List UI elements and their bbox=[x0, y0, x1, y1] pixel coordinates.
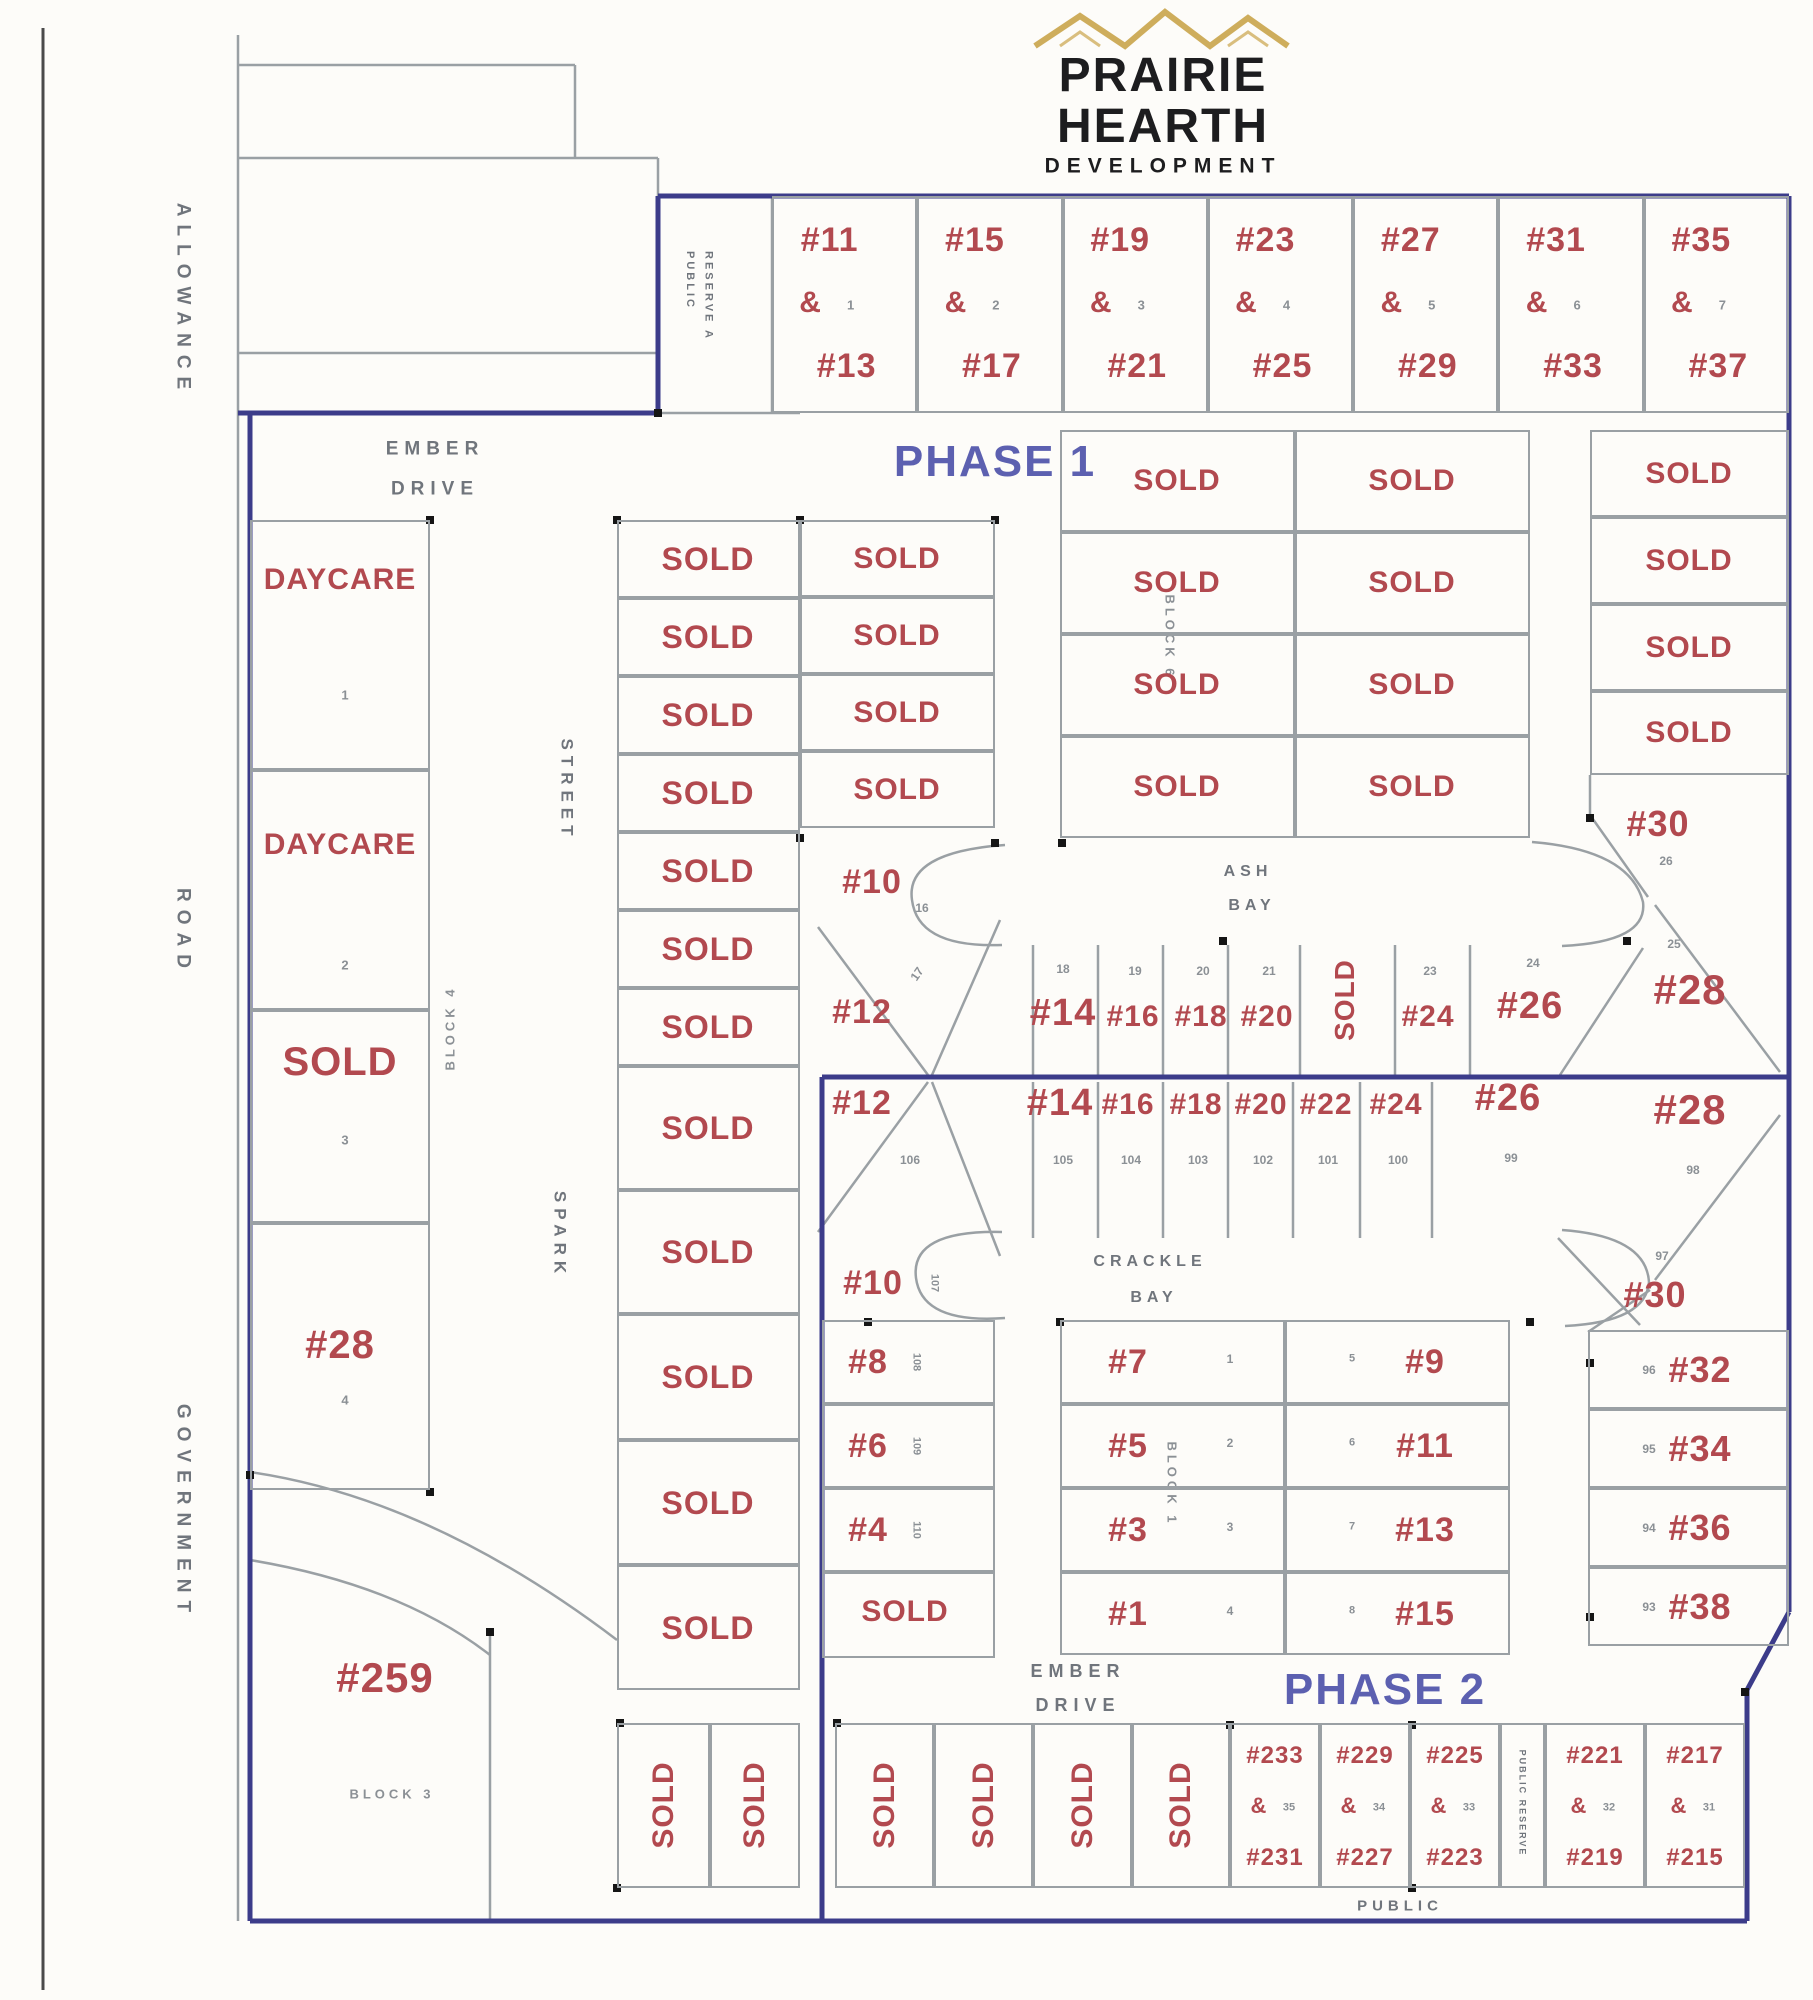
lot-label: #11 bbox=[1396, 1429, 1454, 1463]
lot-label: #17 bbox=[962, 349, 1022, 383]
lot-number: 96 bbox=[1642, 1364, 1655, 1376]
block4-label: BLOCK 4 bbox=[444, 985, 457, 1070]
lot-number: 26 bbox=[1659, 855, 1672, 867]
lot-label: DAYCARE bbox=[264, 565, 417, 595]
logo-line2: HEARTH bbox=[1057, 103, 1269, 151]
ash-bay-label: BAY bbox=[1228, 898, 1275, 914]
lot-label: #8 bbox=[848, 1345, 888, 1379]
rooflines-icon bbox=[1030, 6, 1300, 50]
lot-label: #15 bbox=[1395, 1597, 1455, 1631]
lot-number: 101 bbox=[1318, 1154, 1338, 1166]
lot-label: SOLD bbox=[662, 1361, 755, 1393]
lot-label: #25 bbox=[1253, 349, 1313, 383]
lot-label: #16 bbox=[1101, 1090, 1154, 1120]
public-reserve-a-label: PUBLIC RESERVE A bbox=[680, 251, 717, 341]
lot-cell bbox=[1060, 1488, 1285, 1572]
lot-label: #11 bbox=[801, 223, 859, 257]
lot-number: 108 bbox=[911, 1353, 922, 1371]
lot-label: & bbox=[1526, 288, 1549, 318]
lot-number: 31 bbox=[1703, 1803, 1715, 1814]
lot-number: 8 bbox=[1349, 1605, 1355, 1616]
lot-number: 6 bbox=[1573, 299, 1580, 312]
ember-drive-bottom-label: DRIVE bbox=[1035, 1696, 1120, 1714]
lot-number: 21 bbox=[1262, 965, 1275, 977]
lot-label: #36 bbox=[1668, 1510, 1731, 1546]
lot-label: & bbox=[1235, 288, 1258, 318]
lot-label: #5 bbox=[1108, 1429, 1148, 1463]
lot-label: #227 bbox=[1336, 1846, 1393, 1870]
lot-label: #23 bbox=[1236, 223, 1296, 257]
crackle-bay-label: BAY bbox=[1130, 1290, 1177, 1306]
lot-label: #21 bbox=[1107, 349, 1167, 383]
lot-label: SOLD bbox=[1368, 568, 1455, 598]
lot-label: #26 bbox=[1497, 987, 1563, 1025]
lot-number: 94 bbox=[1642, 1522, 1655, 1534]
lot-cell bbox=[250, 770, 430, 1010]
lot-label: #225 bbox=[1426, 1744, 1483, 1768]
lot-label: SOLD bbox=[853, 775, 940, 805]
lot-cell bbox=[1285, 1320, 1510, 1404]
lot-label: #34 bbox=[1668, 1431, 1731, 1467]
lot-label: #18 bbox=[1169, 1090, 1222, 1120]
lot-label: #38 bbox=[1668, 1589, 1731, 1625]
lot-label: SOLD bbox=[1166, 1761, 1196, 1848]
lot-label: #3 bbox=[1108, 1513, 1148, 1547]
lot-number: 25 bbox=[1667, 938, 1680, 950]
government-label: GOVERNMENT bbox=[174, 1404, 193, 1620]
lot-label: SOLD bbox=[1645, 633, 1732, 663]
lot-number: 2 bbox=[1227, 1437, 1234, 1449]
lot-number: 93 bbox=[1642, 1601, 1655, 1613]
lot-label: #10 bbox=[842, 865, 902, 899]
lot-number: 97 bbox=[1655, 1250, 1668, 1262]
lot-number: 109 bbox=[911, 1437, 922, 1455]
lot-label: SOLD bbox=[662, 1112, 755, 1144]
lot-label: #28 bbox=[1653, 1089, 1726, 1131]
lot-label: #12 bbox=[832, 1086, 892, 1120]
lot-label: #13 bbox=[1395, 1513, 1455, 1547]
lot-number: 4 bbox=[341, 1394, 348, 1407]
lot-label: #221 bbox=[1566, 1744, 1623, 1768]
lot-label: SOLD bbox=[969, 1761, 999, 1848]
lot-label: #22 bbox=[1299, 1090, 1352, 1120]
lot-number: 100 bbox=[1388, 1154, 1408, 1166]
lot-label: SOLD bbox=[662, 621, 755, 653]
lot-cell bbox=[1060, 1404, 1285, 1488]
lot-label: #12 bbox=[832, 995, 892, 1029]
lot-label: SOLD bbox=[1133, 568, 1220, 598]
lot-label: #37 bbox=[1688, 349, 1748, 383]
lot-number: 99 bbox=[1504, 1152, 1517, 1164]
lot-label: #31 bbox=[1526, 223, 1586, 257]
lot-label: #27 bbox=[1381, 223, 1441, 257]
lot-label: #1 bbox=[1108, 1597, 1148, 1631]
lot-number: 1 bbox=[341, 689, 348, 702]
lot-number: 2 bbox=[992, 299, 999, 312]
lot-number: 19 bbox=[1128, 965, 1141, 977]
lot-number: 107 bbox=[929, 1274, 940, 1292]
ash-bay-label: ASH bbox=[1224, 864, 1273, 880]
lot-label: #215 bbox=[1666, 1846, 1723, 1870]
lot-number: 106 bbox=[900, 1154, 920, 1166]
lot-label: SOLD bbox=[1368, 466, 1455, 496]
lot-label: SOLD bbox=[649, 1761, 679, 1848]
lot-label: #4 bbox=[848, 1513, 888, 1547]
lot-number: 4 bbox=[1283, 299, 1290, 312]
lot-number: 103 bbox=[1188, 1154, 1208, 1166]
lot-number: 16 bbox=[915, 902, 928, 914]
lot-number: 110 bbox=[911, 1521, 922, 1539]
lot-label: SOLD bbox=[662, 699, 755, 731]
lot-label: #15 bbox=[945, 223, 1005, 257]
lot-label: SOLD bbox=[1645, 546, 1732, 576]
spark-street-label: STREET bbox=[559, 738, 576, 841]
lot-label: #33 bbox=[1543, 349, 1603, 383]
lot-label: SOLD bbox=[853, 544, 940, 574]
ember-drive-top-label: EMBER bbox=[386, 440, 485, 459]
lot-label: #217 bbox=[1666, 1744, 1723, 1768]
lot-label: #20 bbox=[1240, 1002, 1293, 1032]
lot-number: 32 bbox=[1603, 1803, 1615, 1814]
lot-259-label: #259 bbox=[336, 1657, 433, 1699]
lot-cell bbox=[1060, 1572, 1285, 1655]
lot-label: SOLD bbox=[1133, 670, 1220, 700]
lot-label: #219 bbox=[1566, 1846, 1623, 1870]
lot-label: SOLD bbox=[662, 1612, 755, 1644]
lot-label: SOLD bbox=[1645, 459, 1732, 489]
lot-label: & bbox=[1431, 1795, 1448, 1817]
lot-label: & bbox=[1671, 288, 1694, 318]
lot-number: 7 bbox=[1719, 299, 1726, 312]
lot-number: 24 bbox=[1526, 957, 1539, 969]
lot-label: #30 bbox=[1623, 1277, 1686, 1313]
lot-cell bbox=[250, 520, 430, 770]
lot-number: 2 bbox=[341, 959, 348, 972]
lot-label: #231 bbox=[1246, 1846, 1303, 1870]
lot-label: #223 bbox=[1426, 1846, 1483, 1870]
lot-number: 3 bbox=[341, 1134, 348, 1147]
lot-label: #26 bbox=[1475, 1079, 1541, 1117]
lot-number: 7 bbox=[1349, 1522, 1355, 1533]
lot-label: #233 bbox=[1246, 1744, 1303, 1768]
public-label: PUBLIC bbox=[1357, 1899, 1443, 1914]
ember-drive-top-label: DRIVE bbox=[391, 480, 479, 499]
lot-label: #14 bbox=[1027, 1084, 1093, 1122]
lot-label: #10 bbox=[843, 1266, 903, 1300]
lot-number: 5 bbox=[1428, 299, 1435, 312]
lot-label: #9 bbox=[1405, 1345, 1445, 1379]
lot-label: SOLD bbox=[662, 777, 755, 809]
ember-drive-bottom-label: EMBER bbox=[1030, 1662, 1125, 1680]
lot-number: 23 bbox=[1423, 965, 1436, 977]
lot-label: & bbox=[1341, 1795, 1358, 1817]
lot-label: SOLD bbox=[1068, 1761, 1098, 1848]
lot-label: SOLD bbox=[1368, 670, 1455, 700]
lot-label: SOLD bbox=[662, 933, 755, 965]
lot-label: & bbox=[1571, 1795, 1588, 1817]
lot-number: 34 bbox=[1373, 1803, 1385, 1814]
lot-label: #29 bbox=[1398, 349, 1458, 383]
lot-label: SOLD bbox=[662, 855, 755, 887]
lot-label: #18 bbox=[1174, 1002, 1227, 1032]
lot-label: SOLD bbox=[662, 543, 755, 575]
spark-street-label: SPARK bbox=[552, 1191, 569, 1279]
lot-number: 1 bbox=[1227, 1353, 1234, 1365]
lot-number: 98 bbox=[1686, 1164, 1699, 1176]
lot-cell bbox=[1060, 1320, 1285, 1404]
lot-number: 33 bbox=[1463, 1803, 1475, 1814]
lot-label: #20 bbox=[1234, 1090, 1287, 1120]
lot-label: #28 bbox=[305, 1325, 375, 1365]
lot-number: 3 bbox=[1138, 299, 1145, 312]
road-label: ROAD bbox=[174, 888, 193, 976]
lot-number: 4 bbox=[1227, 1605, 1234, 1617]
phase2-label: PHASE 2 bbox=[1284, 1668, 1486, 1712]
lot-label: SOLD bbox=[1331, 959, 1359, 1041]
lot-label: SOLD bbox=[853, 621, 940, 651]
lot-label: #35 bbox=[1671, 223, 1731, 257]
lot-label: SOLD bbox=[662, 1236, 755, 1268]
lot-label: #28 bbox=[1653, 969, 1726, 1011]
lot-number: 102 bbox=[1253, 1154, 1273, 1166]
lot-label: & bbox=[1251, 1795, 1268, 1817]
lot-label: SOLD bbox=[861, 1597, 948, 1627]
lot-label: SOLD bbox=[282, 1042, 397, 1082]
lot-label: & bbox=[945, 288, 968, 318]
lot-label: SOLD bbox=[1645, 718, 1732, 748]
lot-label: #13 bbox=[817, 349, 877, 383]
lot-number: 105 bbox=[1053, 1154, 1073, 1166]
lot-label: #6 bbox=[848, 1429, 888, 1463]
lot-label: SOLD bbox=[740, 1761, 770, 1848]
lot-cell bbox=[1500, 1723, 1545, 1888]
plat-map: PRAIRIE HEARTH DEVELOPMENT PHASE 1 PHASE… bbox=[0, 0, 1813, 2000]
block3-label: BLOCK 3 bbox=[349, 1788, 434, 1801]
lot-label: #24 bbox=[1401, 1002, 1454, 1032]
lot-label: #30 bbox=[1626, 806, 1689, 842]
crackle-bay-label: CRACKLE bbox=[1093, 1254, 1206, 1270]
lot-number: 5 bbox=[1349, 1354, 1355, 1365]
lot-label: DAYCARE bbox=[264, 830, 417, 860]
lot-number: 95 bbox=[1642, 1443, 1655, 1455]
lot-number: 18 bbox=[1056, 963, 1069, 975]
lot-label: #7 bbox=[1108, 1345, 1148, 1379]
lot-label: & bbox=[799, 288, 822, 318]
lot-label: & bbox=[1090, 288, 1113, 318]
lot-label: SOLD bbox=[870, 1761, 900, 1848]
lot-label: #16 bbox=[1106, 1002, 1159, 1032]
lot-number: 104 bbox=[1121, 1154, 1141, 1166]
lot-number: 35 bbox=[1283, 1803, 1295, 1814]
lot-label: #24 bbox=[1369, 1090, 1422, 1120]
lot-label: #14 bbox=[1030, 994, 1096, 1032]
lot-label: #32 bbox=[1668, 1352, 1731, 1388]
lot-number: 1 bbox=[847, 299, 854, 312]
logo-line1: PRAIRIE bbox=[1059, 52, 1268, 100]
lot-label: SOLD bbox=[1133, 466, 1220, 496]
lot-label: SOLD bbox=[662, 1011, 755, 1043]
lot-label: & bbox=[1671, 1795, 1688, 1817]
lot-number: 3 bbox=[1227, 1521, 1234, 1533]
lot-number: 20 bbox=[1196, 965, 1209, 977]
logo-line3: DEVELOPMENT bbox=[1045, 156, 1282, 177]
lot-label: #19 bbox=[1090, 223, 1150, 257]
allowance-label: ALLOWANCE bbox=[174, 203, 193, 397]
lot-label: #229 bbox=[1336, 1744, 1393, 1768]
lot-label: SOLD bbox=[662, 1487, 755, 1519]
lot-label: SOLD bbox=[1368, 772, 1455, 802]
lot-label: SOLD bbox=[853, 698, 940, 728]
lot-label: SOLD bbox=[1133, 772, 1220, 802]
lot-label: & bbox=[1380, 288, 1403, 318]
lot-number: 6 bbox=[1349, 1438, 1355, 1449]
